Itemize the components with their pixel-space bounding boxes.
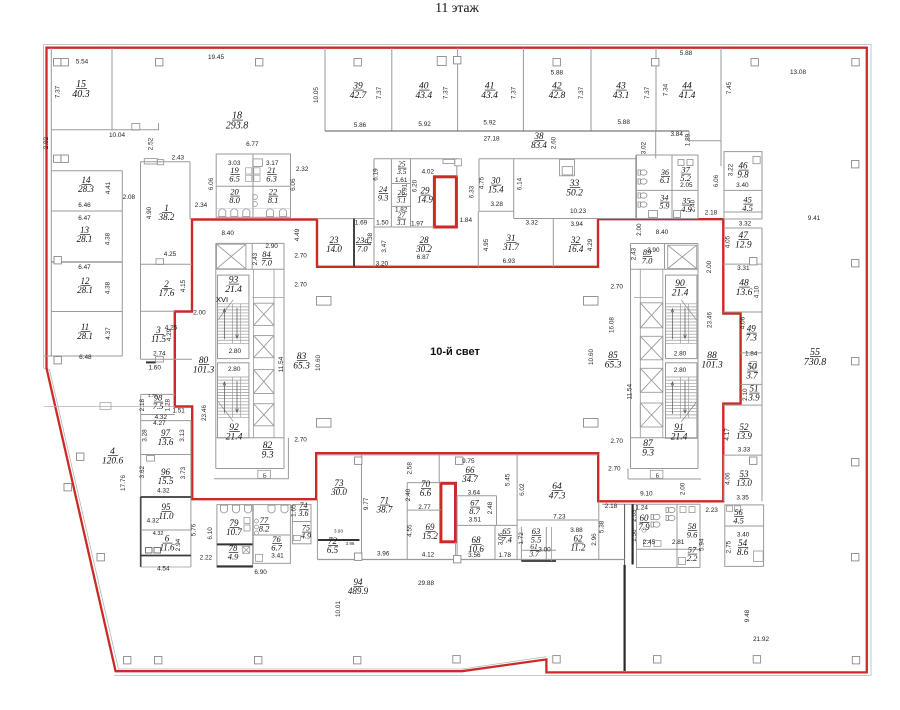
svg-text:5.92: 5.92	[483, 120, 496, 127]
svg-text:29.88: 29.88	[418, 580, 434, 587]
svg-text:2.75: 2.75	[726, 540, 733, 553]
svg-text:3.93: 3.93	[334, 529, 343, 534]
svg-text:3.96: 3.96	[346, 541, 355, 546]
svg-text:1.84: 1.84	[460, 217, 473, 224]
svg-text:4.10: 4.10	[754, 285, 761, 298]
svg-text:11 этаж: 11 этаж	[435, 0, 479, 15]
svg-text:3.40: 3.40	[737, 532, 750, 539]
svg-text:6.47: 6.47	[78, 264, 91, 271]
svg-text:2.81: 2.81	[672, 539, 685, 546]
svg-text:6.06: 6.06	[290, 178, 297, 191]
svg-text:7.37: 7.37	[443, 86, 450, 99]
svg-text:4.32: 4.32	[157, 488, 170, 495]
svg-text:4.32: 4.32	[153, 531, 164, 537]
svg-text:2.43: 2.43	[631, 247, 638, 260]
svg-text:1.89: 1.89	[684, 133, 691, 146]
svg-text:4.38: 4.38	[104, 232, 111, 245]
svg-text:3.56: 3.56	[468, 552, 481, 559]
svg-text:2.00: 2.00	[679, 482, 686, 495]
svg-text:6.48: 6.48	[79, 354, 92, 361]
svg-text:2.34: 2.34	[195, 202, 208, 209]
svg-text:1.69: 1.69	[355, 219, 368, 226]
svg-text:2.70: 2.70	[610, 438, 623, 445]
svg-text:2.58: 2.58	[406, 462, 413, 475]
svg-text:8.40: 8.40	[221, 230, 234, 237]
svg-text:5.88: 5.88	[680, 50, 693, 57]
svg-text:3.28: 3.28	[490, 201, 503, 208]
svg-text:3.06: 3.06	[498, 532, 505, 545]
svg-text:2.80: 2.80	[228, 366, 241, 373]
svg-text:6.19: 6.19	[372, 168, 379, 181]
svg-text:4.54: 4.54	[157, 565, 170, 572]
svg-text:3.17: 3.17	[266, 160, 279, 167]
svg-text:5.86: 5.86	[354, 122, 367, 129]
svg-text:3.02: 3.02	[641, 141, 648, 154]
svg-text:3.00: 3.00	[538, 547, 551, 554]
svg-text:829.3: 829.3	[262, 441, 274, 461]
svg-text:6.46: 6.46	[78, 202, 91, 209]
svg-text:2.96: 2.96	[591, 533, 598, 546]
svg-text:3.47: 3.47	[381, 240, 388, 253]
svg-text:3.84: 3.84	[670, 131, 683, 138]
svg-text:4.49: 4.49	[294, 228, 301, 241]
svg-text:16.08: 16.08	[608, 317, 615, 333]
svg-text:4.06: 4.06	[724, 472, 731, 485]
svg-text:4.05: 4.05	[725, 235, 732, 248]
svg-text:2.80: 2.80	[674, 367, 687, 374]
svg-text:10.05: 10.05	[313, 87, 320, 103]
svg-text:4.15: 4.15	[180, 279, 187, 292]
svg-text:2.70: 2.70	[294, 437, 307, 444]
svg-text:7.37: 7.37	[578, 86, 585, 99]
svg-text:2.92: 2.92	[43, 136, 50, 149]
svg-text:4.02: 4.02	[422, 169, 435, 176]
svg-text:2.18: 2.18	[605, 503, 618, 510]
svg-text:3.94: 3.94	[570, 221, 583, 228]
svg-text:23.46: 23.46	[707, 312, 714, 328]
svg-text:6.47: 6.47	[78, 215, 91, 222]
svg-text:2.48: 2.48	[487, 501, 494, 514]
svg-text:3.41: 3.41	[271, 553, 284, 560]
svg-text:4.38: 4.38	[104, 281, 111, 294]
svg-text:3.73: 3.73	[180, 466, 187, 479]
svg-text:7.37: 7.37	[54, 85, 61, 98]
svg-text:5.45: 5.45	[505, 473, 512, 486]
svg-text:3.32: 3.32	[739, 221, 752, 228]
svg-text:3.13: 3.13	[179, 429, 186, 442]
svg-text:2.52: 2.52	[148, 137, 155, 150]
svg-text:2.00: 2.00	[193, 310, 206, 317]
svg-text:5.88: 5.88	[617, 119, 630, 126]
svg-text:XVI: XVI	[216, 295, 228, 304]
svg-text:1.28: 1.28	[165, 398, 172, 411]
svg-text:3.96: 3.96	[377, 551, 390, 558]
svg-text:3.20: 3.20	[376, 261, 389, 268]
svg-text:6.02: 6.02	[519, 483, 526, 496]
svg-text:2.23: 2.23	[705, 507, 718, 514]
svg-text:6.33: 6.33	[468, 185, 475, 198]
svg-text:2.18: 2.18	[705, 210, 718, 217]
svg-text:4.25: 4.25	[164, 251, 177, 258]
svg-text:2.18: 2.18	[139, 398, 146, 411]
svg-text:4.90: 4.90	[146, 206, 153, 219]
svg-text:4.06: 4.06	[740, 316, 747, 329]
svg-text:4.75: 4.75	[479, 176, 486, 189]
svg-text:2.74: 2.74	[153, 351, 166, 358]
svg-text:1.61: 1.61	[395, 177, 408, 184]
svg-text:9.75: 9.75	[462, 458, 475, 465]
svg-text:6.87: 6.87	[417, 254, 430, 261]
svg-text:3.03: 3.03	[228, 160, 241, 167]
svg-text:2.94: 2.94	[175, 538, 182, 551]
svg-text:5.88: 5.88	[551, 70, 564, 77]
svg-text:3.22: 3.22	[727, 163, 734, 176]
svg-text:9.10: 9.10	[640, 491, 653, 498]
svg-text:6.20: 6.20	[411, 179, 418, 192]
svg-text:1.78: 1.78	[148, 393, 157, 398]
svg-text:879.3: 879.3	[642, 439, 654, 459]
svg-text:4.55: 4.55	[407, 524, 414, 537]
svg-text:2.70: 2.70	[610, 284, 623, 291]
svg-text:1.97: 1.97	[411, 221, 424, 228]
svg-text:7.37: 7.37	[644, 86, 651, 99]
svg-text:10.04: 10.04	[109, 132, 125, 139]
svg-text:27.18: 27.18	[484, 136, 500, 143]
svg-text:1.82: 1.82	[395, 207, 408, 214]
svg-text:17.76: 17.76	[120, 475, 127, 491]
svg-text:5.92: 5.92	[418, 121, 431, 128]
svg-text:3.33: 3.33	[738, 447, 751, 454]
svg-text:9.77: 9.77	[363, 497, 370, 510]
svg-text:11.54: 11.54	[278, 356, 285, 372]
svg-text:1.78: 1.78	[498, 552, 511, 559]
svg-text:4.38: 4.38	[367, 232, 374, 245]
svg-text:11.54: 11.54	[627, 384, 634, 400]
svg-text:7.37: 7.37	[376, 86, 383, 99]
svg-text:6.90: 6.90	[254, 569, 267, 576]
svg-text:2.00: 2.00	[706, 260, 713, 273]
svg-text:10.60: 10.60	[588, 349, 595, 365]
svg-text:4.29: 4.29	[587, 238, 594, 251]
svg-text:1.65: 1.65	[290, 504, 297, 517]
svg-text:5.76: 5.76	[191, 523, 198, 536]
svg-text:3.31: 3.31	[737, 265, 750, 272]
svg-text:9.48: 9.48	[744, 609, 751, 622]
svg-text:10.01: 10.01	[335, 601, 342, 617]
svg-text:4.37: 4.37	[105, 327, 112, 340]
svg-text:5.38: 5.38	[599, 520, 606, 533]
svg-text:1.91: 1.91	[401, 183, 408, 196]
svg-text:13.08: 13.08	[790, 69, 806, 76]
svg-text:23.46: 23.46	[201, 405, 208, 421]
svg-text:3.62: 3.62	[139, 465, 146, 478]
svg-text:1.50: 1.50	[631, 529, 638, 542]
svg-text:2.90: 2.90	[647, 247, 660, 254]
svg-text:3.51: 3.51	[469, 517, 482, 524]
svg-text:2.10: 2.10	[742, 388, 749, 401]
svg-text:2.70: 2.70	[294, 253, 307, 260]
svg-text:10-й свет: 10-й свет	[430, 346, 480, 358]
svg-text:2.08: 2.08	[123, 194, 136, 201]
svg-text:1.51: 1.51	[172, 408, 185, 415]
svg-text:10.23: 10.23	[570, 208, 586, 215]
svg-text:7.45: 7.45	[726, 81, 733, 94]
svg-text:4.29: 4.29	[166, 328, 173, 341]
svg-text:2.32: 2.32	[296, 166, 309, 173]
svg-text:2.43: 2.43	[252, 252, 259, 265]
svg-text:5.94: 5.94	[699, 538, 706, 551]
svg-text:6.06: 6.06	[713, 174, 720, 187]
svg-text:6.10: 6.10	[207, 527, 214, 540]
svg-text:7.34: 7.34	[663, 83, 670, 96]
svg-text:4.12: 4.12	[422, 552, 435, 559]
svg-text:2.05: 2.05	[680, 182, 693, 189]
svg-text:19.45: 19.45	[208, 54, 224, 61]
svg-text:7.23: 7.23	[553, 514, 566, 521]
svg-text:1.50: 1.50	[376, 219, 389, 226]
svg-text:1.72: 1.72	[518, 532, 525, 545]
svg-text:3.64: 3.64	[468, 489, 481, 496]
svg-text:2.43: 2.43	[172, 155, 185, 162]
svg-text:4.32: 4.32	[147, 518, 160, 525]
svg-text:2.77: 2.77	[418, 504, 431, 511]
svg-text:3.35: 3.35	[736, 495, 749, 502]
svg-text:6.93: 6.93	[503, 258, 516, 265]
svg-text:2.22: 2.22	[200, 555, 213, 562]
svg-text:7.37: 7.37	[510, 86, 517, 99]
svg-text:9.41: 9.41	[808, 215, 821, 222]
svg-text:3.88: 3.88	[570, 527, 583, 534]
svg-text:4.27: 4.27	[153, 420, 166, 427]
svg-text:3.40: 3.40	[736, 182, 749, 189]
svg-text:2.45: 2.45	[643, 539, 656, 546]
svg-text:2.00: 2.00	[636, 223, 643, 236]
svg-text:10.60: 10.60	[315, 355, 322, 371]
svg-text:3.28: 3.28	[142, 429, 149, 442]
svg-text:6.14: 6.14	[516, 177, 523, 190]
svg-text:4.41: 4.41	[105, 181, 112, 194]
svg-text:6.77: 6.77	[246, 141, 259, 148]
svg-text:2.40: 2.40	[405, 488, 412, 501]
svg-text:2.03: 2.03	[631, 509, 638, 522]
svg-text:4.95: 4.95	[483, 238, 490, 251]
svg-text:6.06: 6.06	[208, 177, 215, 190]
svg-text:1.84: 1.84	[745, 351, 758, 358]
svg-text:2.90: 2.90	[265, 243, 278, 250]
svg-text:21.92: 21.92	[753, 636, 769, 643]
svg-text:2.70: 2.70	[608, 466, 621, 473]
svg-text:2.80: 2.80	[229, 348, 242, 355]
svg-text:5.54: 5.54	[76, 59, 89, 66]
svg-text:4.17: 4.17	[724, 428, 731, 441]
svg-text:2.80: 2.80	[674, 350, 687, 357]
svg-text:2.40: 2.40	[689, 199, 696, 212]
svg-text:8.40: 8.40	[656, 229, 669, 236]
svg-text:2.70: 2.70	[294, 282, 307, 289]
svg-text:3.32: 3.32	[525, 220, 538, 227]
svg-text:1.60: 1.60	[148, 365, 161, 372]
svg-text:2.60: 2.60	[551, 136, 558, 149]
